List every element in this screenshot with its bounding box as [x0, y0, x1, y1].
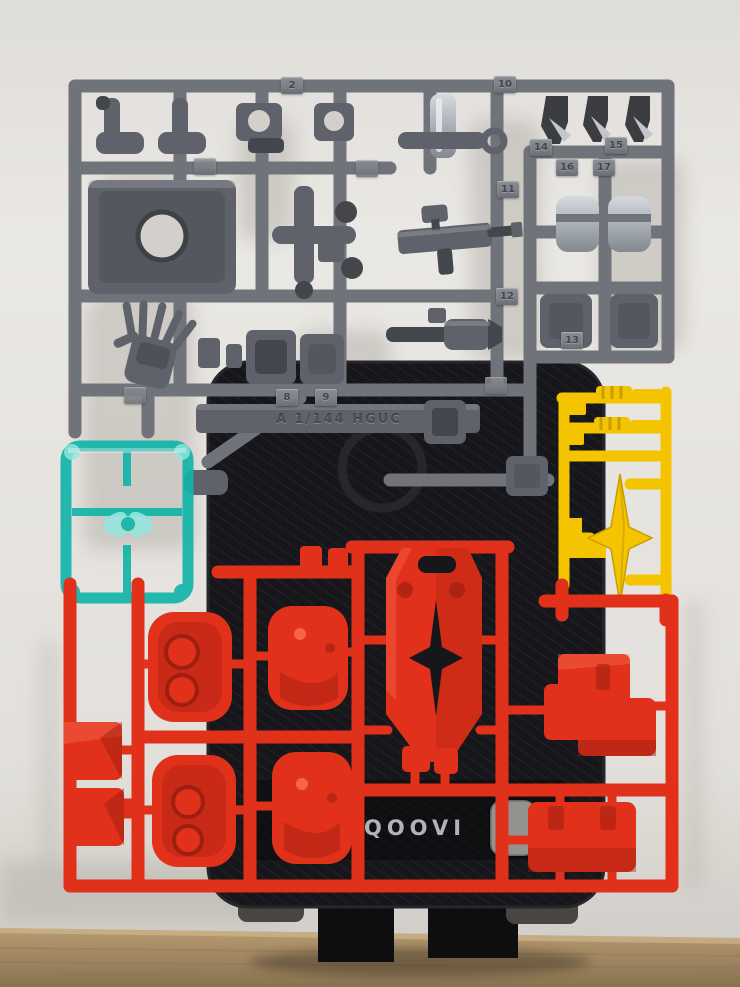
- gray-box-with-hole-part: [88, 180, 236, 294]
- gray-claw-parts: [541, 96, 653, 144]
- gunpla-runner-photo: A 1/144 HGUC QOOVI 2 8 9 10 11 12 13 14 …: [0, 0, 740, 987]
- red-shield-part: [386, 548, 482, 762]
- scene: [0, 0, 740, 987]
- stand-shadow: [250, 948, 590, 976]
- red-engine-block-part: [528, 802, 636, 872]
- gray-waist-parts: [246, 330, 344, 384]
